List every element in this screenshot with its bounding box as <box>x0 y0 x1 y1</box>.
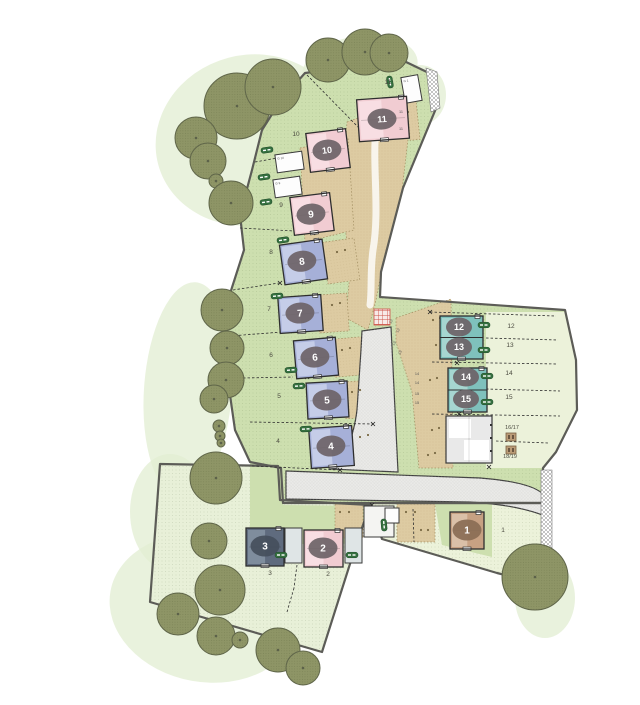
bay-marker-dot <box>336 251 338 253</box>
ev-parking-marker-icon <box>381 519 388 531</box>
plot-number-label: 7 <box>267 306 271 313</box>
plot-number-11: 11 <box>377 114 387 125</box>
plot-number-label: 8 <box>269 249 273 256</box>
plot-number-1: 1 <box>464 526 470 537</box>
site-plan-drawing: G 1G 10G 9123456789101112131415 11109876… <box>0 0 640 705</box>
house-5: 5 <box>306 379 349 420</box>
bay-marker-dot <box>431 429 433 431</box>
bay-marker-dot <box>427 529 429 531</box>
bay-marker-dot <box>414 511 416 513</box>
bay-marker-dot <box>344 249 346 251</box>
bay-marker-dot <box>359 389 361 391</box>
ev-parking-marker-icon <box>478 322 490 328</box>
site-plan-page: G 1G 10G 9123456789101112131415 11109876… <box>0 0 640 705</box>
house-10: 10 <box>306 127 351 174</box>
house-4: 4 <box>309 424 355 470</box>
ev-parking-marker-icon <box>275 552 287 558</box>
plot-number-label: 13 <box>506 342 514 349</box>
bay-marker-dot <box>438 427 440 429</box>
garage-block-16-19 <box>446 416 492 463</box>
plot-number-label: 2 <box>326 571 330 578</box>
bin-store <box>506 433 516 441</box>
bay-marker-dot <box>434 452 436 454</box>
parking-bay-label: 14 <box>415 381 419 385</box>
house-7: 7 <box>278 293 324 335</box>
garage-label: G 9 <box>275 181 281 186</box>
parking-bay-label: 15 <box>415 392 419 396</box>
house-14-15: 1415 <box>448 367 487 414</box>
tree-icon <box>201 289 243 331</box>
plot-number-label: 18/19 <box>503 454 517 460</box>
tree-icon <box>232 632 248 648</box>
plot-number-label: 11 <box>385 79 392 86</box>
plot-number-label: 4 <box>276 438 280 445</box>
tree-icon <box>213 420 225 432</box>
plot-number-15: 15 <box>461 394 471 404</box>
plot-number-label: 9 <box>279 202 283 209</box>
parking-bay <box>397 504 435 542</box>
parking-bay-label: 15 <box>415 401 419 405</box>
bin-store <box>506 446 516 454</box>
plot-number-label: 5 <box>277 393 281 400</box>
bay-marker-dot <box>367 434 369 436</box>
bay-marker-dot <box>359 436 361 438</box>
garage-building <box>385 508 399 523</box>
plot-number-13: 13 <box>454 342 464 352</box>
ev-parking-marker-icon <box>481 399 493 405</box>
bay-marker-dot <box>435 344 437 346</box>
garage-building: G 10 <box>275 151 304 173</box>
bay-marker-dot <box>339 511 341 513</box>
ev-parking-marker-icon <box>300 426 312 432</box>
tree-icon <box>195 565 245 615</box>
tree-icon <box>190 452 242 504</box>
garage-building: G 9 <box>273 176 302 198</box>
tree-icon <box>209 181 253 225</box>
ev-parking-marker-icon <box>293 383 305 389</box>
tree-icon <box>210 331 244 365</box>
tree-icon <box>502 544 568 610</box>
garage-building <box>285 528 302 563</box>
plot-number-label: 14 <box>505 370 513 377</box>
bay-marker-dot <box>339 302 341 304</box>
plot-number-label: 10 <box>292 131 300 138</box>
plot-number-label: 16/17 <box>505 425 519 431</box>
bay-marker-dot <box>351 391 353 393</box>
tree-icon <box>245 59 301 115</box>
plot-number-10: 10 <box>321 145 332 156</box>
tree-icon <box>200 385 228 413</box>
bay-marker-dot <box>348 511 350 513</box>
plot-number-3: 3 <box>262 542 268 553</box>
parking-bay-label: 11 <box>399 110 403 114</box>
bay-marker-dot <box>427 454 429 456</box>
tree-icon <box>197 617 235 655</box>
tree-icon <box>217 439 225 447</box>
ev-parking-marker-icon <box>271 293 283 299</box>
parking-bay-label: 11 <box>399 127 403 131</box>
hatch-strip <box>541 470 552 552</box>
parking-bay-label: 14 <box>415 372 419 376</box>
house-12-13: 1213 <box>440 315 483 361</box>
plot-number-label: 1 <box>501 527 505 534</box>
ev-parking-marker-icon <box>285 367 297 373</box>
bay-marker-dot <box>341 349 343 351</box>
ev-parking-marker-icon <box>346 552 358 558</box>
house-3: 3 <box>246 527 284 568</box>
bay-marker-dot <box>349 347 351 349</box>
tree-icon <box>370 34 408 72</box>
bay-marker-dot <box>420 529 422 531</box>
plot-number-label: 3 <box>268 570 272 577</box>
tree-icon <box>157 593 199 635</box>
house-6: 6 <box>293 336 338 381</box>
house-11: 11 <box>356 95 409 143</box>
house-9: 9 <box>290 191 335 237</box>
tree-icon <box>286 651 320 685</box>
plot-number-label: 12 <box>507 323 515 330</box>
bay-marker-dot <box>436 377 438 379</box>
bay-marker-dot <box>429 379 431 381</box>
house-8: 8 <box>279 238 328 287</box>
tree-icon <box>190 143 226 179</box>
plot-number-label: 15 <box>505 394 513 401</box>
plot-number-5: 5 <box>324 395 331 406</box>
plot-number-label: 6 <box>269 352 273 359</box>
tree-icon <box>191 523 227 559</box>
house-2: 2 <box>304 529 343 569</box>
bay-marker-dot <box>331 304 333 306</box>
plot-number-12: 12 <box>454 322 464 332</box>
house-1: 1 <box>450 511 484 551</box>
bay-marker-dot <box>432 319 434 321</box>
plot-number-2: 2 <box>320 544 326 555</box>
ev-parking-marker-icon <box>478 347 490 353</box>
ev-parking-marker-icon <box>481 373 493 379</box>
bay-marker-dot <box>405 511 407 513</box>
plot-number-14: 14 <box>461 372 471 382</box>
